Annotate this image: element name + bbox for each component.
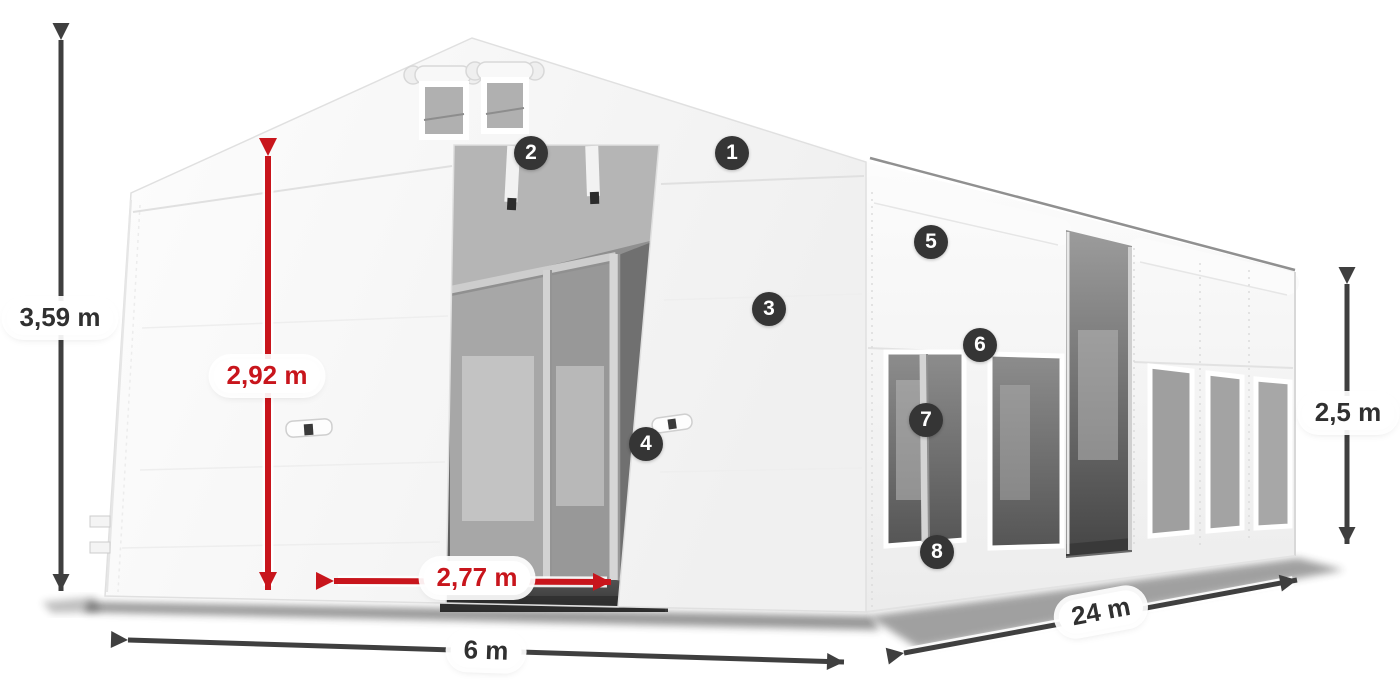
dimension-diagram: 3,59 m 2,92 m 2,77 m 6 m 24 m 2,5 m 1 2 …	[0, 0, 1400, 700]
callout-marker-2[interactable]: 2	[514, 136, 548, 170]
door-handle-left	[285, 418, 332, 437]
side-window-open-2	[990, 354, 1062, 548]
side-windows-glazed	[1150, 366, 1290, 536]
dimension-label-total-height: 3,59 m	[7, 301, 114, 335]
callout-marker-1[interactable]: 1	[715, 136, 749, 170]
callout-marker-8[interactable]: 8	[920, 535, 954, 569]
tent-illustration	[0, 0, 1400, 700]
callout-marker-5[interactable]: 5	[914, 225, 948, 259]
wall-buckle	[90, 516, 110, 527]
dimension-label-door-width: 2,77 m	[424, 561, 531, 595]
callout-marker-3[interactable]: 3	[752, 292, 786, 326]
dimension-label-side-height: 2,5 m	[1302, 396, 1395, 430]
wall-buckle	[90, 542, 110, 553]
side-doorway	[1066, 230, 1132, 558]
callout-marker-4[interactable]: 4	[629, 427, 663, 461]
callout-marker-7[interactable]: 7	[909, 403, 943, 437]
side-window-open-1	[886, 352, 964, 546]
dimension-label-door-height: 2,92 m	[214, 359, 321, 393]
dimension-label-front-width: 6 m	[450, 633, 522, 669]
callout-marker-6[interactable]: 6	[963, 328, 997, 362]
